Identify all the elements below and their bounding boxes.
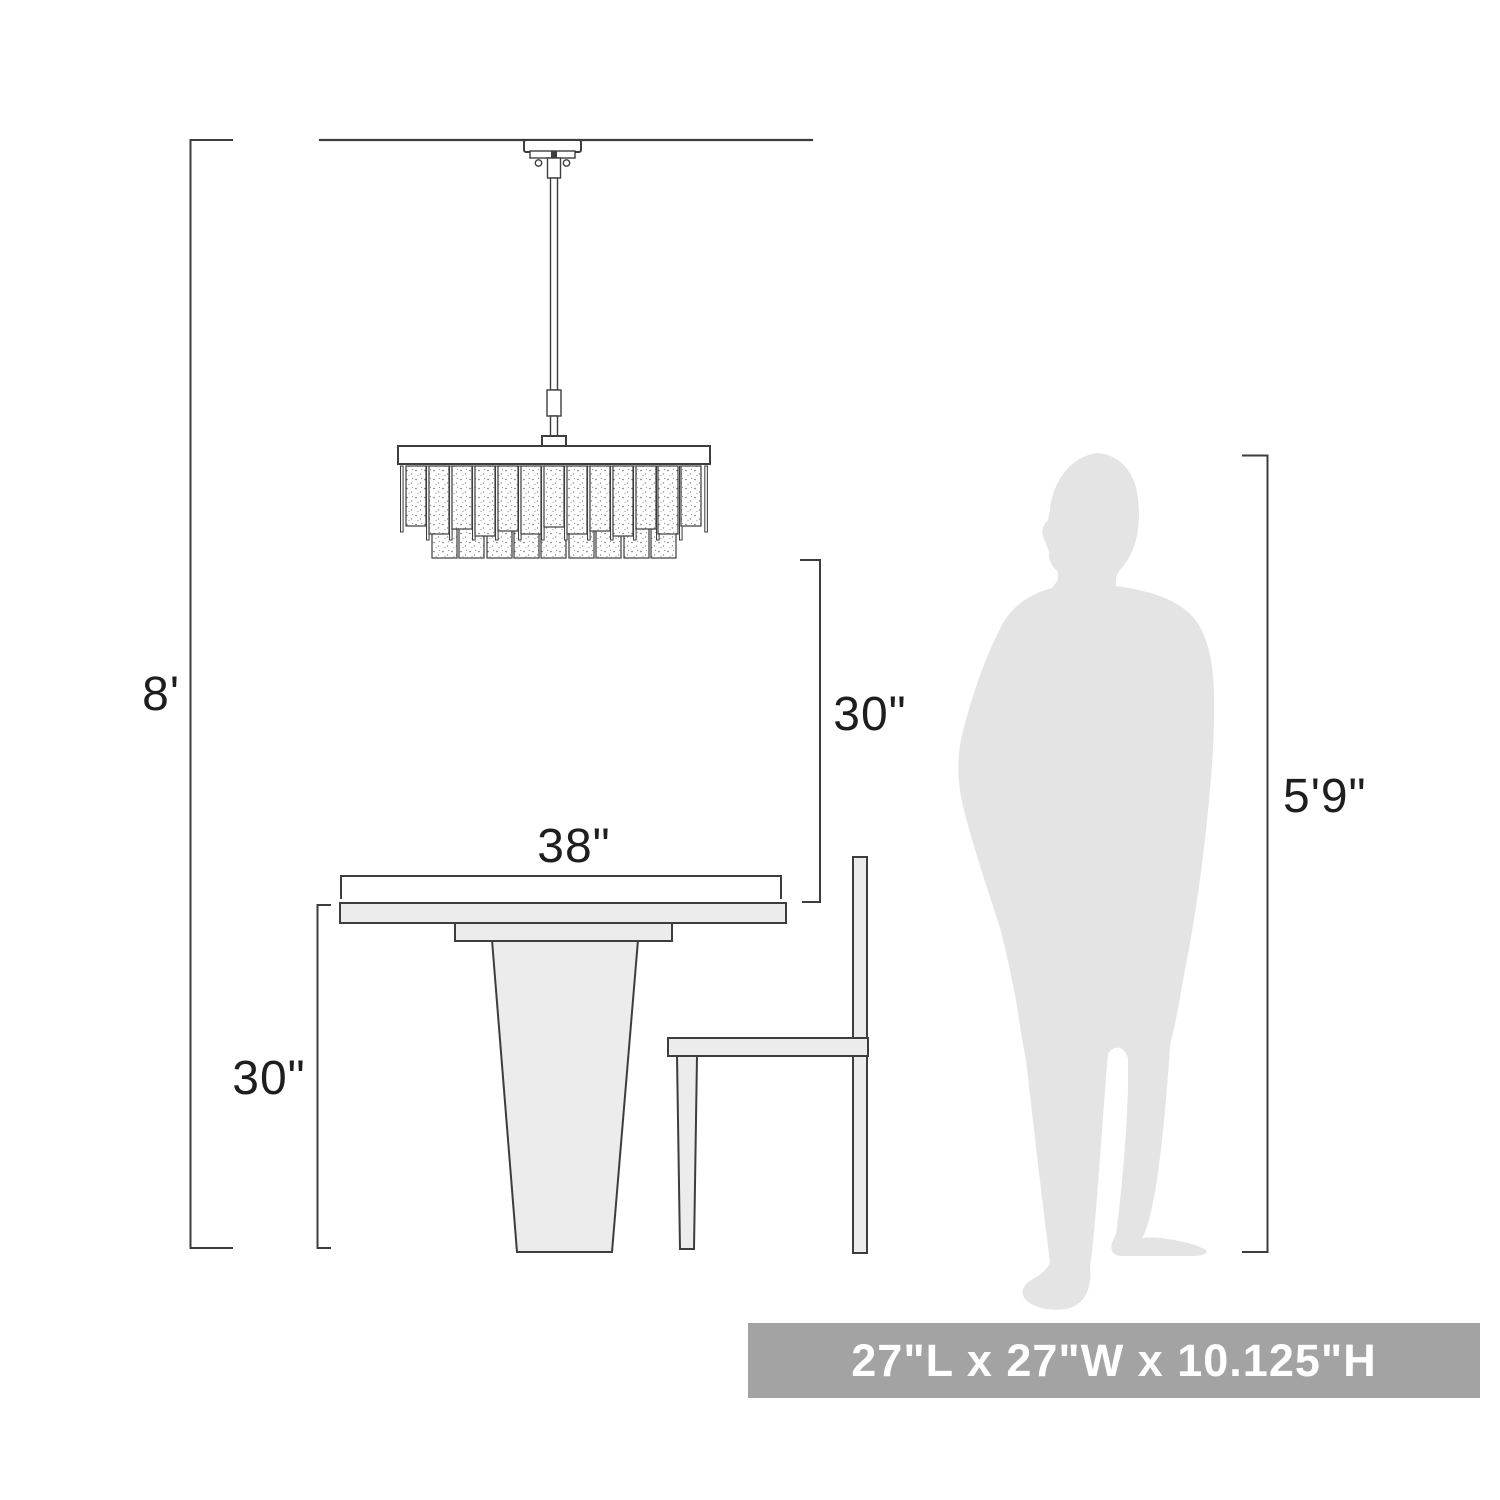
table <box>340 903 786 1252</box>
stem-rod <box>551 178 558 390</box>
ceiling-height-dimension-line <box>191 140 233 1248</box>
chandelier-canopy <box>524 140 581 152</box>
hang-clearance-dimension-line <box>801 560 820 902</box>
table-pedestal <box>492 940 638 1252</box>
table-height-label: 30" <box>228 1054 310 1104</box>
stem-rod-lower <box>551 416 558 436</box>
person-silhouette <box>958 453 1214 1310</box>
size-banner: 27"L x 27"W x 10.125"H <box>748 1323 1480 1398</box>
ceiling-height-label: 8' <box>104 670 180 720</box>
table-height-dimension-line <box>318 905 331 1248</box>
table-width-dimension-line <box>341 876 781 898</box>
chandelier-band <box>398 446 710 464</box>
person-height-label: 5'9" <box>1283 772 1403 822</box>
canopy-screw <box>535 160 541 166</box>
table-width-label: 38" <box>530 822 618 872</box>
stem-collar <box>548 158 561 178</box>
diagram-linework <box>0 0 1500 1500</box>
table-apron <box>455 923 672 941</box>
hang-clearance-label: 30" <box>826 690 914 740</box>
size-banner-text: 27"L x 27"W x 10.125"H <box>851 1335 1376 1387</box>
chair-seat <box>668 1038 868 1056</box>
stem-coupler <box>547 390 561 416</box>
chair-front-leg <box>677 1056 697 1249</box>
person-height-dimension-line <box>1243 456 1268 1253</box>
fixture-mount <box>542 436 566 446</box>
table-top <box>340 903 786 923</box>
canopy-screw <box>563 160 569 166</box>
dimension-diagram: 8' 30" 38" 30" 5'9" 27"L x 27"W x 10.125… <box>0 0 1500 1500</box>
chandelier <box>398 140 710 558</box>
